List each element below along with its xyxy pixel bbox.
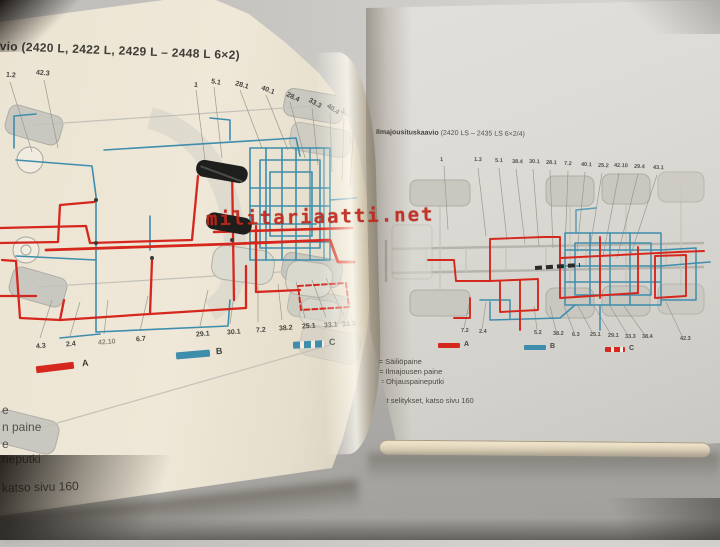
part-number-label: 25.1: [590, 333, 601, 339]
part-number-label: 7.2: [461, 329, 469, 335]
legend-b-letter: B: [550, 343, 555, 350]
part-number-label: 38.2: [279, 325, 293, 333]
brake-chambers: [13, 147, 43, 263]
part-number-label: 1.2: [6, 72, 16, 80]
footer-fragment: n paine: [2, 421, 41, 433]
part-number-label: 7.2: [564, 162, 572, 168]
part-number-label: 30.1: [227, 329, 241, 337]
part-number-label: 33.3: [625, 335, 636, 341]
book-photo: { "watermark": { "text": "militariaatti.…: [0, 0, 720, 540]
part-number-label: 5.1: [495, 159, 503, 165]
right-page-title-bold: Ilmajousituskaavio: [376, 129, 439, 137]
part-number-label: 43.1: [653, 166, 664, 172]
legend-a-red-bar: [438, 343, 460, 348]
right-page: Ilmajousituskaavio (2420 LS – 2435 LS 6×…: [366, 0, 720, 458]
legend-line: C = Ohjauspaineputki: [372, 378, 444, 386]
legend-b-blue-bar: [524, 345, 546, 350]
part-number-label: 5.1: [210, 78, 221, 87]
legend-c-letter: C: [329, 338, 336, 347]
part-number-label: 41.1: [351, 113, 366, 127]
cab-outline: [392, 225, 432, 279]
part-number-label: 38.4: [512, 160, 523, 166]
footer-note: Muut selitykset, katso sivu 160: [372, 397, 474, 405]
frame-rails: [386, 240, 704, 282]
part-number-label: 40.1: [581, 163, 592, 169]
part-number-label: 1: [440, 158, 443, 164]
legend-c-letter: C: [629, 345, 634, 352]
part-number-label: 33.3: [342, 321, 356, 329]
part-number-label: 5.2: [534, 331, 542, 337]
part-number-label: 2.4: [479, 330, 487, 336]
legend-a-letter: A: [464, 341, 469, 348]
footer-fragment: e: [2, 404, 9, 416]
part-number-label: 42.10: [614, 164, 628, 170]
legend-c-striped-bar: [605, 347, 625, 352]
page-shadow: [368, 453, 720, 481]
part-number-label: 38.2: [553, 332, 564, 338]
driveshaft: [535, 265, 580, 268]
footer-fragment: e: [2, 438, 9, 450]
part-number-label: 25.2: [598, 164, 609, 170]
part-number-label: 30.1: [529, 160, 540, 166]
part-number-label: 6.3: [572, 333, 580, 339]
legend-b-letter: B: [216, 347, 223, 356]
part-number-label: 29.1: [196, 331, 210, 339]
part-number-label: 29.1: [608, 334, 619, 340]
photo-corner-shadow: [590, 0, 720, 34]
part-number-label: 7.2: [256, 327, 266, 335]
part-number-label: 25.1: [302, 323, 316, 331]
part-number-label: 1.3: [474, 158, 482, 164]
part-number-label: 6.7: [136, 336, 146, 344]
part-number-label: 2.4: [66, 341, 76, 349]
part-number-label: 42.10: [98, 338, 116, 346]
part-number-label: 4.3: [36, 343, 46, 351]
part-number-label: 1: [194, 82, 199, 89]
legend-line: B = Ilmajousen paine: [372, 368, 442, 376]
part-number-label: 28.1: [546, 161, 557, 167]
right-page-title-rest: (2420 LS – 2435 LS 6×2/4): [439, 130, 525, 138]
legend-a-letter: A: [82, 359, 89, 369]
part-number-label: 33.1: [324, 322, 338, 330]
legend-line: A = Säiliöpaine: [372, 358, 422, 366]
part-number-label: 42.3: [36, 70, 50, 78]
part-number-label: 29.4: [634, 165, 645, 171]
photo-corner-shadow: [0, 0, 96, 52]
part-number-label: 38.4: [642, 335, 653, 341]
part-number-label: 42.3: [680, 337, 691, 343]
photo-edge-shadow: [0, 518, 720, 540]
right-diagram: [366, 0, 720, 458]
